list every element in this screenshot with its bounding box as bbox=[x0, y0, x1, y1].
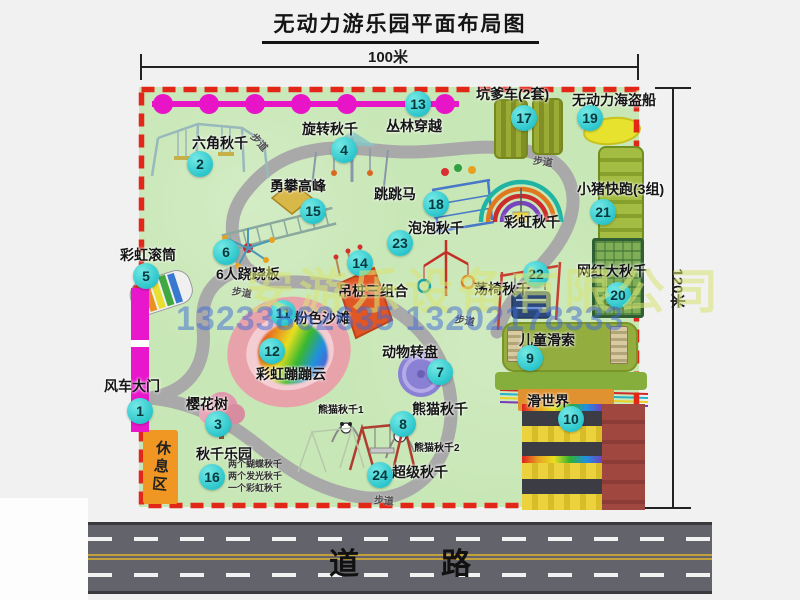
marker-21: 21 bbox=[590, 199, 616, 225]
marker-17: 17 bbox=[511, 105, 537, 131]
rest-area-box: 休息区 bbox=[143, 430, 178, 504]
label-hexagon-swing: 六角秋千 bbox=[192, 133, 248, 153]
path-label: 步道 bbox=[231, 282, 253, 300]
label-rotating-swing: 旋转秋千 bbox=[302, 119, 358, 139]
swing-park-notes: 两个蝴蝶秋千 两个发光秋千 一个彩虹秋千 bbox=[228, 458, 282, 494]
rest-area-label: 休息区 bbox=[147, 439, 174, 495]
label-bounce-cloud: 彩虹蹦蹦云 bbox=[256, 364, 326, 384]
slide-world-green-band bbox=[495, 372, 647, 390]
label-rainbow-roller: 彩虹滚筒 bbox=[120, 245, 176, 265]
label-bubble-swing: 泡泡秋千 bbox=[408, 218, 464, 238]
label-super-swing: 超级秋千 bbox=[392, 462, 448, 482]
pit-kart-pad-2 bbox=[532, 98, 563, 155]
marker-15: 15 bbox=[300, 198, 326, 224]
label-pink-beach: 粉色沙滩 bbox=[294, 308, 350, 328]
marker-6: 6 bbox=[213, 239, 239, 265]
label-seesaw: 6人跷跷板 bbox=[216, 264, 280, 284]
label-rainbow-swing: 彩虹秋千 bbox=[504, 212, 560, 232]
marker-1: 1 bbox=[127, 398, 153, 424]
marker-20: 20 bbox=[605, 282, 631, 308]
label-animal-turntable: 动物转盘 bbox=[382, 342, 438, 362]
marker-8: 8 bbox=[390, 411, 416, 437]
label-jumping-horse: 跳跳马 bbox=[374, 184, 416, 204]
label-panda-swing: 熊猫秋千 bbox=[412, 399, 468, 419]
marker-11: 11 bbox=[270, 300, 296, 326]
marker-3: 3 bbox=[205, 411, 231, 437]
label-big-swing: 网红大秋千 bbox=[577, 261, 647, 281]
slide-world-tower bbox=[602, 404, 645, 510]
label-pit-kart: 坑爹车(2套) bbox=[476, 84, 549, 104]
swing-park-sketch bbox=[298, 428, 364, 472]
bubble-swing-icon bbox=[418, 240, 474, 296]
park-layout-poster: 无动力游乐园平面布局图 bbox=[0, 0, 800, 600]
label-piggy-run: 小猪快跑(3组) bbox=[577, 179, 664, 199]
height-dimension-label: 120米 bbox=[668, 268, 689, 308]
path-label: 步道 bbox=[374, 491, 395, 507]
label-panda-swing-1: 熊猫秋千1 bbox=[318, 401, 364, 416]
label-panda-swing-2: 熊猫秋千2 bbox=[414, 439, 460, 454]
marker-18: 18 bbox=[423, 191, 449, 217]
marker-5: 5 bbox=[133, 263, 159, 289]
marker-24: 24 bbox=[367, 462, 393, 488]
marker-4: 4 bbox=[331, 137, 357, 163]
path-label: 步道 bbox=[454, 310, 476, 328]
marker-7: 7 bbox=[427, 359, 453, 385]
label-climbing-peak: 勇攀高峰 bbox=[270, 176, 326, 196]
marker-12: 12 bbox=[259, 338, 285, 364]
width-dimension-label: 100米 bbox=[368, 46, 408, 67]
path-label: 步道 bbox=[532, 152, 554, 170]
label-jungle-crossing: 丛林穿越 bbox=[386, 116, 442, 136]
marker-23: 23 bbox=[387, 230, 413, 256]
label-windmill-gate: 风车大门 bbox=[104, 376, 160, 396]
label-hanging-post: 吊桩三组合 bbox=[338, 281, 408, 301]
marker-14: 14 bbox=[347, 250, 373, 276]
marker-19: 19 bbox=[577, 105, 603, 131]
road: 道 路 bbox=[88, 522, 712, 594]
road-label: 道 路 bbox=[88, 539, 712, 583]
road-left-margin bbox=[0, 498, 88, 600]
marker-22: 22 bbox=[523, 261, 549, 287]
marker-9: 9 bbox=[517, 345, 543, 371]
label-glider-swing: 荡椅秋千 bbox=[474, 279, 530, 299]
zipline-tower-icon bbox=[610, 326, 628, 364]
marker-13: 13 bbox=[405, 91, 431, 117]
marker-16: 16 bbox=[199, 464, 225, 490]
marker-10: 10 bbox=[558, 406, 584, 432]
marker-2: 2 bbox=[187, 151, 213, 177]
